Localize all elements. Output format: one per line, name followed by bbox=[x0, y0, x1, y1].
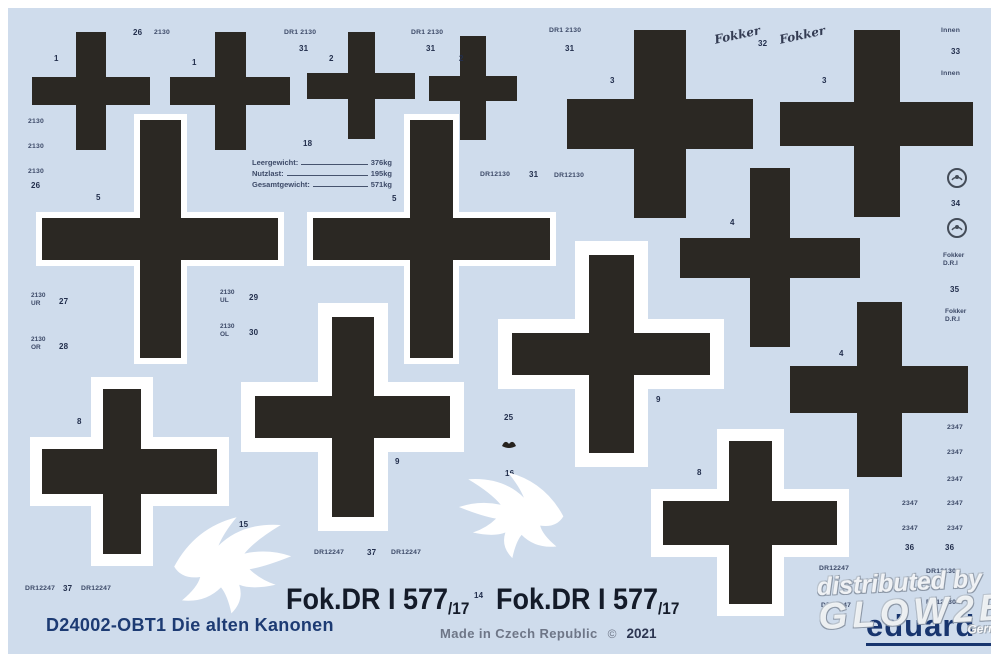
decal-label: DR12247 bbox=[821, 602, 851, 609]
made-in-text: Made in Czech Republic bbox=[440, 626, 598, 641]
cross-decal bbox=[512, 333, 710, 375]
cross-decal bbox=[307, 73, 415, 99]
decal-label: 36 bbox=[945, 543, 954, 552]
decal-label: 35 bbox=[950, 285, 959, 294]
fokker-script-logo: Fokker bbox=[713, 23, 761, 46]
decal-label: Innen bbox=[941, 27, 960, 34]
decal-label: 5 bbox=[392, 194, 397, 203]
cross-decal bbox=[42, 218, 278, 260]
decal-label: 2347 bbox=[947, 525, 963, 532]
decal-label: 2 bbox=[459, 54, 464, 63]
decal-label: 1 bbox=[192, 58, 197, 67]
decal-label: 4 bbox=[839, 349, 844, 358]
cross-decal bbox=[32, 77, 150, 105]
decal-label: 36 bbox=[905, 543, 914, 552]
eduard-underline bbox=[866, 643, 991, 646]
eduard-logo: eduard bbox=[866, 610, 975, 641]
fokker-script-logo: Fokker bbox=[778, 23, 826, 46]
weight-row: Nutzlast:195kg bbox=[252, 169, 392, 178]
eagle-silhouette-decal bbox=[168, 512, 300, 616]
decal-label: 14 bbox=[474, 591, 483, 600]
eagle-silhouette-decal bbox=[452, 466, 568, 562]
decal-label: 2347 bbox=[902, 525, 918, 532]
decal-label: 4 bbox=[730, 218, 735, 227]
decal-label: 26 bbox=[133, 28, 142, 37]
decal-label: 31 bbox=[529, 170, 538, 179]
decal-label: 2130 bbox=[28, 143, 44, 150]
decal-label: 8 bbox=[697, 468, 702, 477]
registration-suffix: /17 bbox=[448, 599, 469, 619]
decal-label: 2347 bbox=[947, 424, 963, 431]
decal-label: Innen bbox=[941, 70, 960, 77]
weight-placard: Leergewicht:376kgNutzlast:195kgGesamtgew… bbox=[252, 158, 392, 191]
decal-sheet: Leergewicht:376kgNutzlast:195kgGesamtgew… bbox=[8, 8, 991, 654]
decal-label: DR12130 bbox=[480, 171, 510, 178]
decal-label: 3 bbox=[822, 76, 827, 85]
decal-label: 34 bbox=[951, 199, 960, 208]
decal-label: 2347 bbox=[902, 500, 918, 507]
decal-label: 31 bbox=[299, 44, 308, 53]
cross-decal bbox=[170, 77, 290, 105]
decal-label: DR12247 bbox=[25, 585, 55, 592]
cross-decal bbox=[567, 99, 753, 149]
decal-label: 37 bbox=[367, 548, 376, 557]
decal-label: DR12247 bbox=[314, 549, 344, 556]
decal-label: DR12130 bbox=[554, 172, 584, 179]
decal-label: 2 bbox=[329, 54, 334, 63]
decal-label: 18 bbox=[303, 139, 312, 148]
cross-decal bbox=[255, 396, 450, 438]
decal-label: 30 bbox=[249, 328, 258, 337]
registration-text: Fok.DR I 577 bbox=[496, 583, 658, 616]
decal-label: 31 bbox=[565, 44, 574, 53]
decal-label: 5 bbox=[96, 193, 101, 202]
decal-layer: Leergewicht:376kgNutzlast:195kgGesamtgew… bbox=[8, 8, 991, 654]
decal-label: 31 bbox=[426, 44, 435, 53]
decal-label: DR12247 bbox=[81, 585, 111, 592]
registration-suffix: /17 bbox=[658, 599, 679, 619]
decal-label: Fokker D.R.I bbox=[945, 308, 966, 324]
decal-label: 2130 bbox=[28, 168, 44, 175]
cross-decal bbox=[780, 102, 973, 146]
made-in-line: Made in Czech Republic © 2021 bbox=[440, 626, 657, 641]
fokker-roundel-icon bbox=[946, 217, 968, 239]
decal-label: Fokker D.R.I bbox=[943, 252, 964, 268]
cross-decal bbox=[663, 501, 837, 545]
decal-label: 37 bbox=[63, 584, 72, 593]
decal-label: 9 bbox=[656, 395, 661, 404]
decal-label: 29 bbox=[249, 293, 258, 302]
registration-decal-1: Fok.DR I 577/17 bbox=[286, 583, 469, 617]
eduard-wordmark: eduard bbox=[866, 610, 975, 641]
decal-label: DR1 2130 bbox=[411, 29, 443, 36]
cross-decal bbox=[790, 366, 968, 413]
copyright-year: 2021 bbox=[626, 626, 656, 641]
copyright-icon: © bbox=[608, 627, 617, 641]
decal-label: DR12130 bbox=[926, 599, 956, 606]
small-marking-decal bbox=[501, 437, 517, 455]
decal-label: 8 bbox=[77, 417, 82, 426]
decal-label: 2130 bbox=[154, 29, 170, 36]
decal-label: 2130 UL bbox=[220, 289, 234, 305]
decal-label: 2130 OR bbox=[31, 336, 45, 352]
decal-label: 27 bbox=[59, 297, 68, 306]
decal-label: 2347 bbox=[947, 500, 963, 507]
registration-text: Fok.DR I 577 bbox=[286, 583, 448, 616]
decal-label: 25 bbox=[504, 413, 513, 422]
decal-label: 9 bbox=[395, 457, 400, 466]
cross-decal bbox=[429, 76, 517, 101]
decal-label: DR1 2130 bbox=[284, 29, 316, 36]
decal-label: 2130 bbox=[28, 118, 44, 125]
decal-label: 1 bbox=[54, 54, 59, 63]
decal-label: 32 bbox=[758, 39, 767, 48]
cross-decal bbox=[313, 218, 550, 260]
decal-label: 28 bbox=[59, 342, 68, 351]
decal-label: 3 bbox=[610, 76, 615, 85]
fokker-roundel-icon bbox=[946, 167, 968, 189]
decal-label: 2347 bbox=[947, 449, 963, 456]
decal-label: 2347 bbox=[947, 476, 963, 483]
weight-row: Leergewicht:376kg bbox=[252, 158, 392, 167]
cross-decal bbox=[680, 238, 860, 278]
decal-label: 2130 UR bbox=[31, 292, 45, 308]
cross-decal bbox=[42, 449, 217, 494]
decal-sheet-scan: { "colors": { "sheet_bg": "#cfdcec", "cr… bbox=[0, 0, 1000, 667]
decal-label: 26 bbox=[31, 181, 40, 190]
decal-label: DR12247 bbox=[391, 549, 421, 556]
decal-label: DR12247 bbox=[819, 565, 849, 572]
decal-label: DR1 2130 bbox=[549, 27, 581, 34]
weight-row: Gesamtgewicht:571kg bbox=[252, 180, 392, 189]
decal-label: DR12130 bbox=[926, 568, 956, 575]
registration-decal-2: Fok.DR I 577/17 bbox=[496, 583, 679, 617]
sheet-title: D24002-OBT1 Die alten Kanonen bbox=[46, 615, 334, 636]
decal-label: 33 bbox=[951, 47, 960, 56]
decal-label: 2130 OL bbox=[220, 323, 234, 339]
